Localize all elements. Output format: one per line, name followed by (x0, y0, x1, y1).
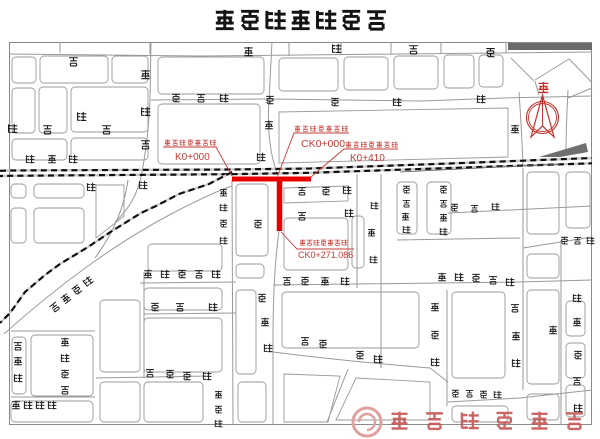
svg-text:CK0+271.086: CK0+271.086 (298, 250, 353, 260)
svg-text:CK0+000: CK0+000 (301, 138, 345, 150)
svg-text:K0+410: K0+410 (350, 153, 385, 164)
svg-text:K0+000: K0+000 (175, 152, 210, 163)
